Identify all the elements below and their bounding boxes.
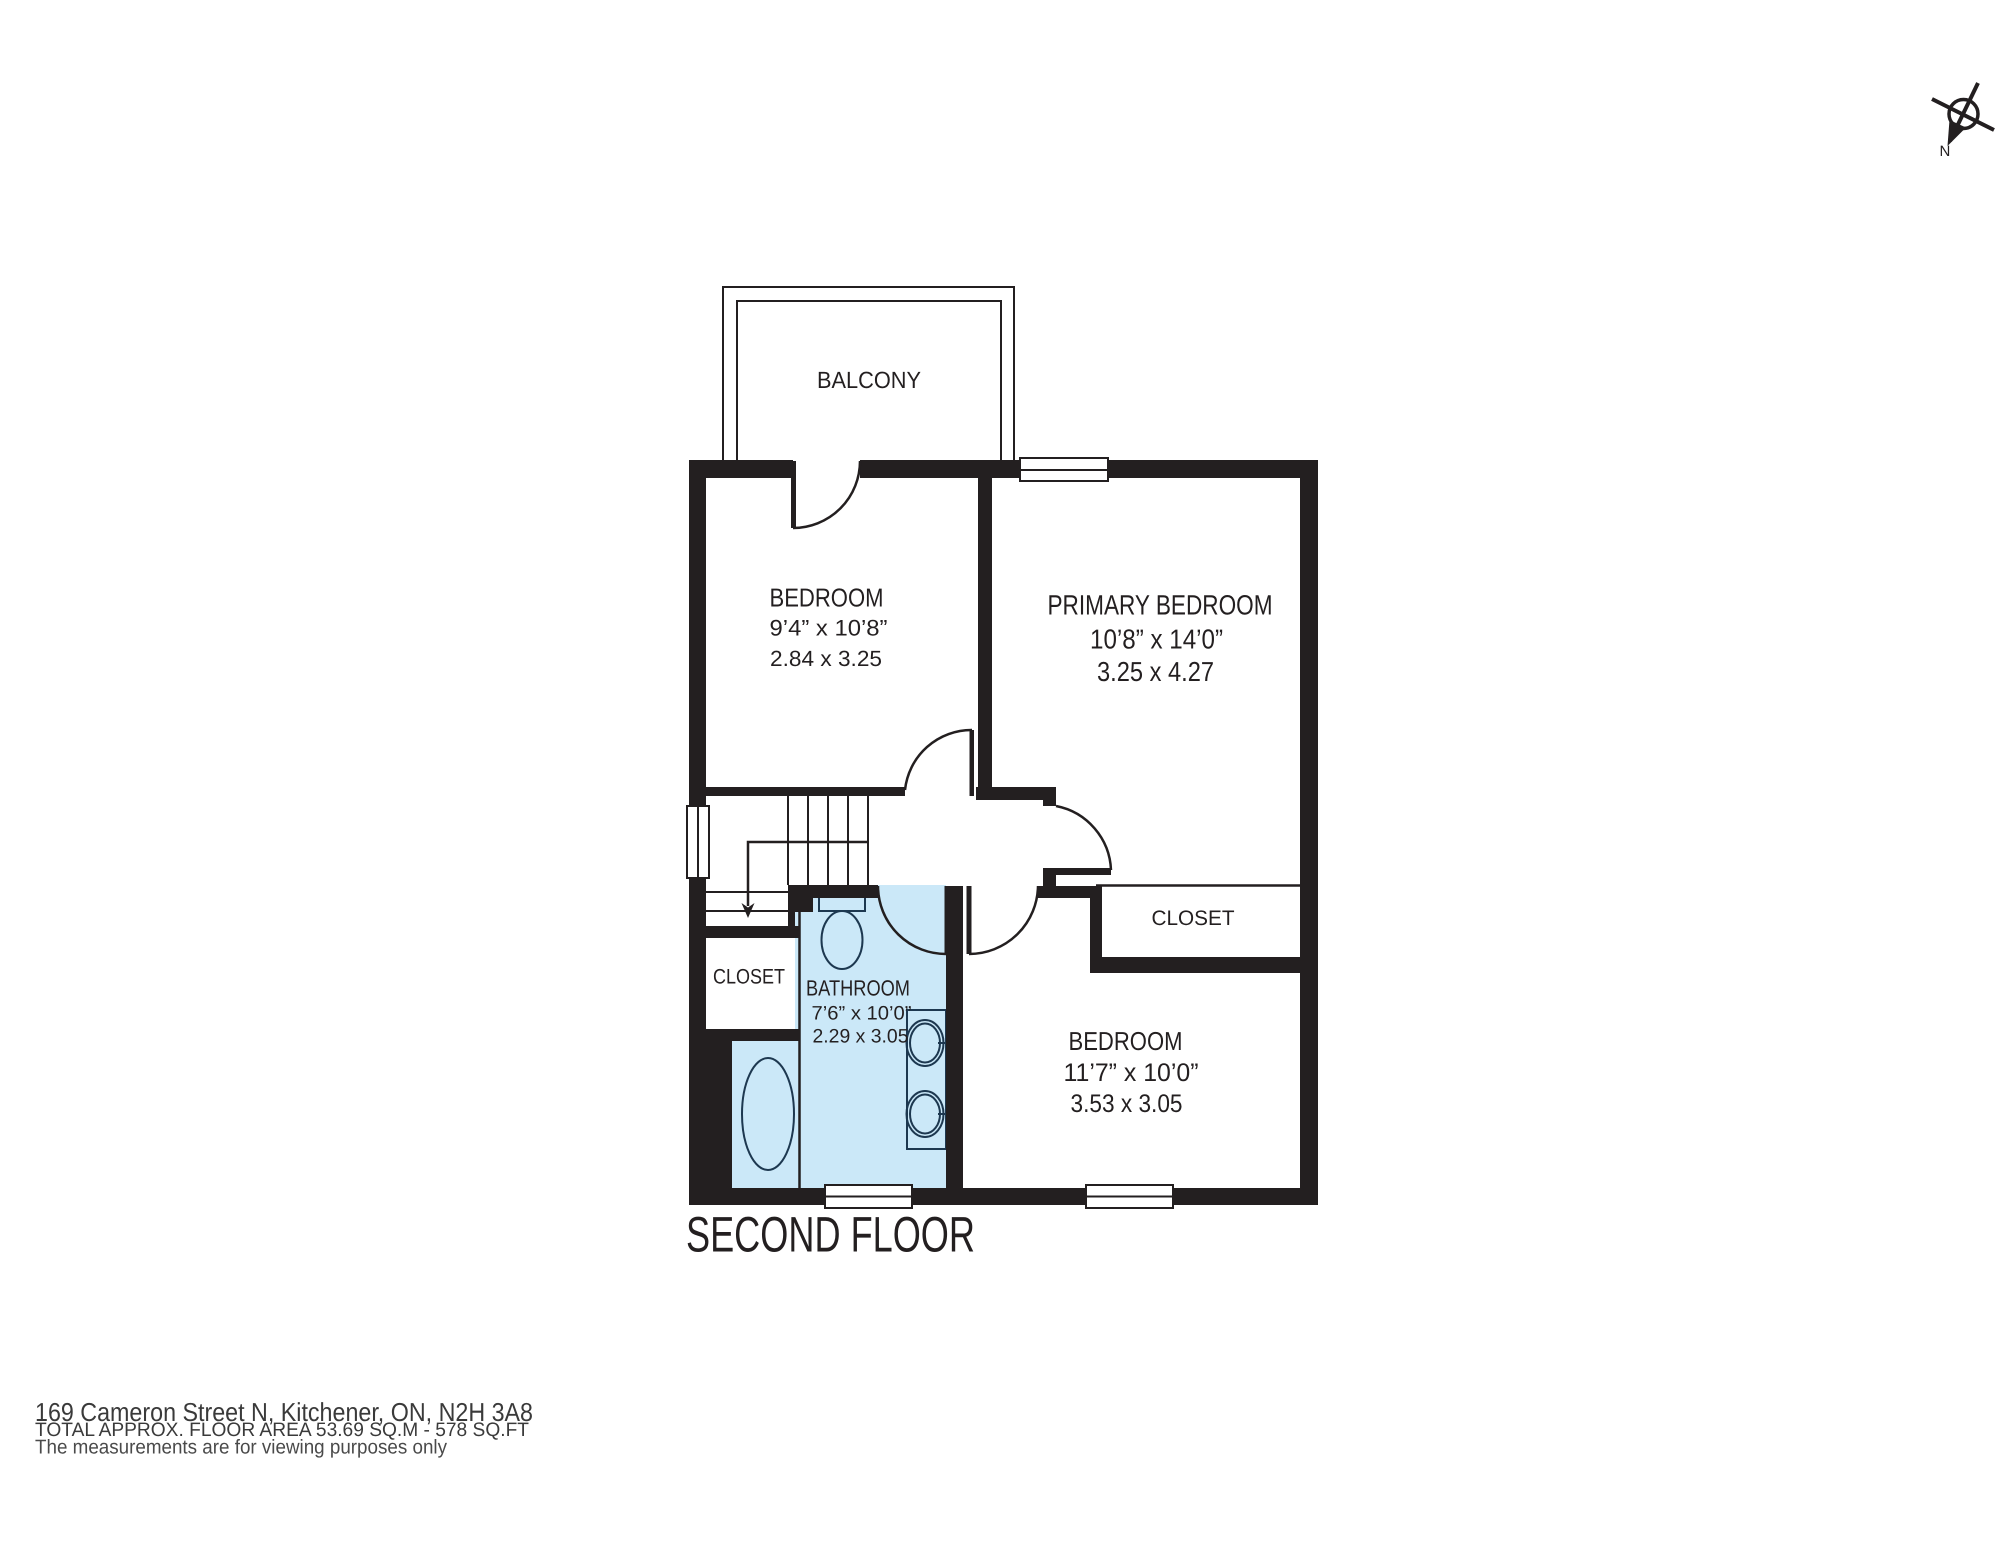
svg-text:BEDROOM: BEDROOM: [1069, 1026, 1183, 1056]
svg-text:11’7” x 10’0”: 11’7” x 10’0”: [1064, 1059, 1199, 1087]
svg-text:BATHROOM: BATHROOM: [806, 976, 910, 1001]
svg-text:10’8” x 14’0”: 10’8” x 14’0”: [1090, 624, 1223, 655]
svg-text:BEDROOM: BEDROOM: [770, 583, 884, 613]
svg-text:7’6” x 10’0”: 7’6” x 10’0”: [812, 1003, 912, 1025]
svg-text:3.53 x 3.05: 3.53 x 3.05: [1071, 1090, 1183, 1118]
svg-text:N: N: [1940, 143, 1951, 160]
svg-text:2.29 x 3.05: 2.29 x 3.05: [813, 1026, 909, 1048]
svg-text:SECOND FLOOR: SECOND FLOOR: [686, 1207, 975, 1263]
svg-text:CLOSET: CLOSET: [713, 966, 785, 989]
svg-text:The measurements are for viewi: The measurements are for viewing purpose…: [35, 1437, 447, 1459]
svg-text:CLOSET: CLOSET: [1152, 907, 1235, 930]
svg-text:2.84 x 3.25: 2.84 x 3.25: [770, 646, 882, 671]
svg-text:3.25 x 4.27: 3.25 x 4.27: [1097, 656, 1214, 687]
svg-text:PRIMARY BEDROOM: PRIMARY BEDROOM: [1048, 590, 1273, 621]
svg-text:9’4” x 10’8”: 9’4” x 10’8”: [770, 616, 888, 641]
svg-text:BALCONY: BALCONY: [817, 367, 921, 393]
